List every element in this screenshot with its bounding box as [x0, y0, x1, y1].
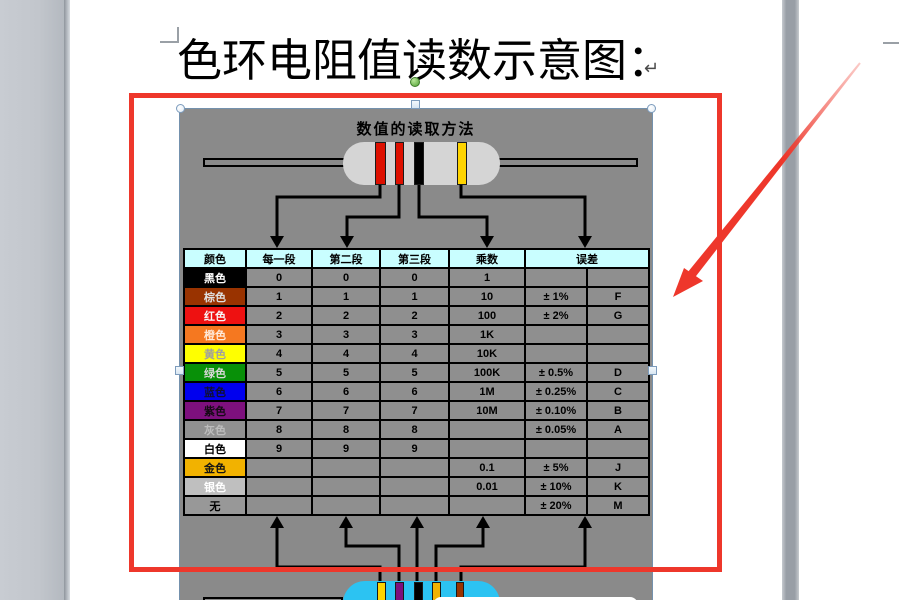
margin-corner-mark-page2	[883, 42, 899, 44]
rotate-handle[interactable]	[410, 77, 420, 87]
word-document-view: 色环电阻值读数示意图： ↵ 数值的读取方法	[0, 0, 899, 600]
page-separator	[782, 0, 799, 600]
annotation-rectangle	[129, 93, 722, 572]
black-band	[414, 582, 423, 600]
window-background-left	[0, 0, 64, 600]
purple-band	[395, 582, 404, 600]
yellow-band	[377, 582, 386, 600]
paragraph-mark: ↵	[644, 58, 659, 79]
document-heading[interactable]: 色环电阻值读数示意图：	[177, 34, 697, 88]
next-page-edge	[799, 0, 899, 600]
